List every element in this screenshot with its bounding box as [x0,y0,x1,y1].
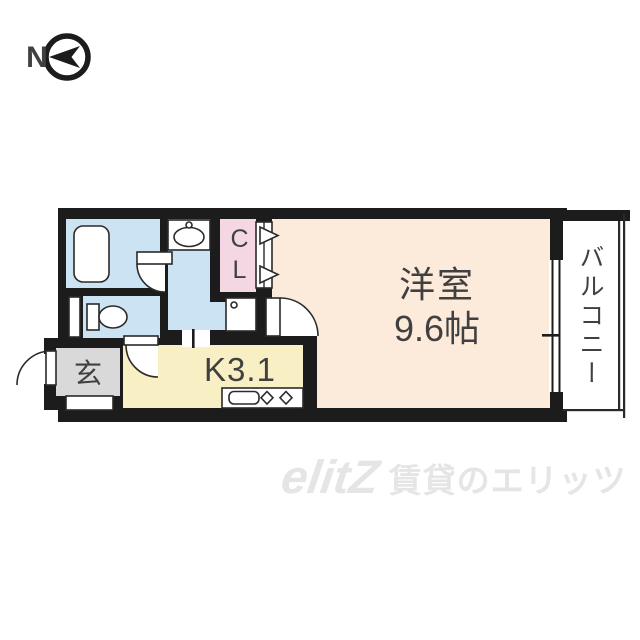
washing-machine-space [226,298,256,331]
main-room-size: 9.6帖 [337,304,537,348]
closet-label: CL [221,222,257,290]
entrance-step [66,396,113,410]
kitchen-counter [222,388,303,408]
balcony-rail-inner [618,221,620,411]
watermark-text: 賃貸のエリッツ [389,462,627,500]
watermark: elitZ 賃貸のエリッツ [282,444,627,500]
bathtub [74,226,109,282]
washbasin [168,220,210,250]
entrance-door [17,351,56,385]
floor-plan-image: N CL 玄 K3.1 洋室 9.6帖 バルコニー elitZ 賃貸のエリッツ [0,0,640,640]
washroom-doorway [182,329,210,348]
floor-plan-drawing [0,0,640,640]
north-compass-icon [46,36,88,78]
watermark-logo: elitZ [279,453,382,500]
balcony-rail-outer [623,214,625,418]
entrance-label: 玄 [56,347,120,396]
main-room-name: 洋室 [337,261,537,303]
kitchen-label: K3.1 [160,349,320,391]
toilet [87,304,127,330]
balcony-label: バルコニー [564,228,616,404]
pipe-space [69,297,80,337]
north-label: N [22,40,52,76]
balcony-rail-bottom [563,409,625,411]
